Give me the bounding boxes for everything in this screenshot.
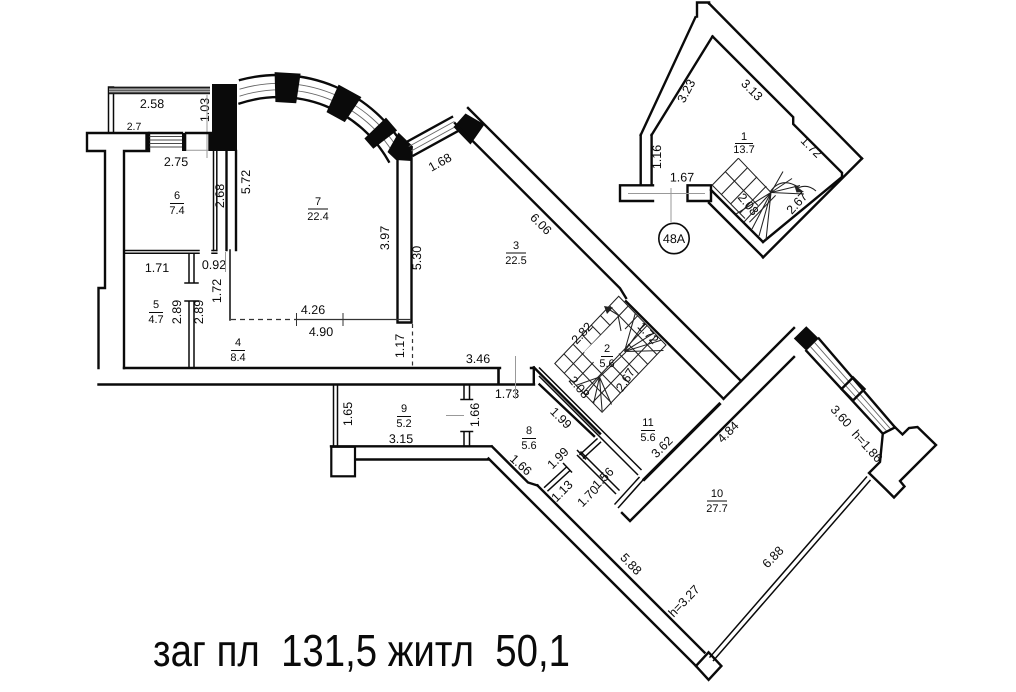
svg-text:2.68: 2.68 [213,184,227,208]
svg-text:11: 11 [642,417,653,429]
svg-text:7.4: 7.4 [169,205,184,217]
svg-text:8: 8 [526,425,532,437]
svg-text:1.16: 1.16 [650,145,664,169]
svg-text:4.90: 4.90 [309,325,333,339]
svg-text:10: 10 [711,488,723,500]
svg-text:2: 2 [604,343,610,355]
svg-text:2.89: 2.89 [192,300,206,324]
svg-text:48A: 48A [663,232,686,246]
svg-text:1.65: 1.65 [341,402,355,426]
svg-text:7: 7 [315,196,321,208]
svg-text:4: 4 [235,337,241,349]
svg-text:4.7: 4.7 [148,314,163,326]
svg-text:5.6: 5.6 [521,440,536,452]
svg-text:27.7: 27.7 [706,503,727,515]
svg-text:2.58: 2.58 [140,97,164,111]
svg-text:5.6: 5.6 [640,432,655,444]
svg-text:6: 6 [174,190,180,202]
svg-text:1.17: 1.17 [393,334,407,358]
svg-text:5.6: 5.6 [599,358,614,370]
svg-text:1.71: 1.71 [145,261,169,275]
svg-text:1.66: 1.66 [468,403,482,427]
svg-text:22.5: 22.5 [505,255,526,267]
svg-text:8.4: 8.4 [230,352,245,364]
svg-text:1: 1 [741,131,747,143]
svg-text:4.26: 4.26 [301,303,325,317]
svg-text:2.75: 2.75 [164,155,188,169]
svg-text:1.03: 1.03 [198,98,212,122]
svg-text:2.89: 2.89 [170,300,184,324]
svg-text:5.72: 5.72 [239,170,253,194]
svg-text:заг пл 131,5 житл 50,1: заг пл 131,5 житл 50,1 [153,625,570,676]
svg-text:9: 9 [401,403,407,415]
svg-text:3.15: 3.15 [389,432,413,446]
svg-text:5.2: 5.2 [396,418,411,430]
svg-text:3: 3 [513,240,519,252]
svg-text:1.67: 1.67 [670,171,694,185]
svg-text:5: 5 [153,299,159,311]
svg-text:5.30: 5.30 [410,246,424,270]
svg-text:13.7: 13.7 [733,144,754,156]
svg-text:3.46: 3.46 [466,352,490,366]
svg-text:3.97: 3.97 [378,226,392,250]
svg-text:2.7: 2.7 [127,121,142,133]
svg-text:22.4: 22.4 [307,211,328,223]
svg-text:1.72: 1.72 [210,279,224,303]
svg-text:0.92: 0.92 [202,258,226,272]
